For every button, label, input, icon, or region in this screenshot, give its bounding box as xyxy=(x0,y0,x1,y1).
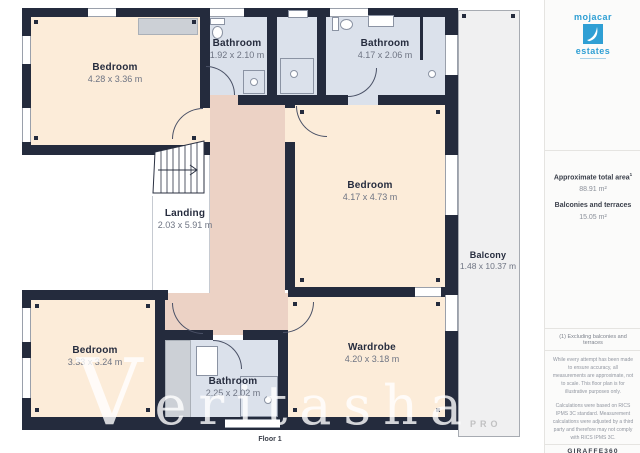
window-top-3 xyxy=(330,8,368,17)
wall-bedroom3-top xyxy=(22,290,168,300)
window-top-1 xyxy=(88,8,116,17)
shower-drain-2 xyxy=(290,70,298,78)
closet-bedroom-top-left xyxy=(138,18,198,35)
door-gap-bedroom2 xyxy=(285,108,295,142)
window-left-3 xyxy=(22,308,31,342)
watermark-sub: PRO xyxy=(470,419,502,429)
sink-bath2 xyxy=(368,15,394,27)
total-area-value: 88.91 m² xyxy=(549,186,637,193)
provider-brand: GIRAFFE360 xyxy=(551,448,635,453)
wall-wardrobe-top-a xyxy=(288,287,415,297)
balcony-area-value: 15.05 m² xyxy=(549,214,637,221)
stairs xyxy=(150,136,208,196)
window-right-1 xyxy=(445,35,458,75)
shower-drain-bath1 xyxy=(250,78,258,86)
wall-bath3-top-a xyxy=(155,330,213,340)
total-area-label: Approximate total area1 xyxy=(549,170,637,182)
room-label-bathroom-top-right: Bathroom 4.17 x 2.06 m xyxy=(325,38,445,60)
window-left-2 xyxy=(22,108,31,142)
floor-label: Floor 1 xyxy=(230,436,310,443)
sidebar-divider-1 xyxy=(545,150,640,151)
floorplan-canvas: Bedroom 4.28 x 3.36 m Bathroom 1.92 x 2.… xyxy=(0,0,544,453)
room-label-bathroom-top-center: Bathroom 1.92 x 2.10 m xyxy=(177,38,297,60)
room-label-landing: Landing 2.03 x 5.91 m xyxy=(115,208,255,230)
toilet-bowl-bath2 xyxy=(340,19,353,30)
agency-logo-name-top: mojacar xyxy=(545,12,640,22)
room-balcony xyxy=(458,10,520,437)
sidebar-divider-3 xyxy=(545,350,640,351)
room-label-bedroom-bottom-left: Bedroom 3.33 x 3.24 m xyxy=(25,345,165,367)
room-label-bedroom-top-left: Bedroom 4.28 x 3.36 m xyxy=(45,62,185,84)
agency-logo: mojacar estates xyxy=(545,12,640,59)
floorplan-page: Bedroom 4.28 x 3.36 m Bathroom 1.92 x 2.… xyxy=(0,0,640,453)
window-bottom-1 xyxy=(225,419,280,428)
shower-drain-bath2 xyxy=(428,70,436,78)
agency-logo-name-bottom: estates xyxy=(545,46,640,56)
room-label-bathroom-bottom: Bathroom 2.25 x 2.02 m xyxy=(163,376,303,398)
room-label-wardrobe: Wardrobe 4.20 x 3.18 m xyxy=(302,342,442,364)
sidebar-divider-2 xyxy=(545,328,640,329)
door-gap-bath1 xyxy=(210,95,238,105)
window-wardrobe-top xyxy=(415,287,441,297)
sink-bath3 xyxy=(196,346,218,376)
balcony-door xyxy=(445,155,458,215)
wall-under-bathrooms xyxy=(200,95,458,105)
disclaimer-paragraph-1: While every attempt has been made to ens… xyxy=(551,356,635,396)
area-footnote: (1) Excluding balconies and terraces xyxy=(549,334,637,346)
area-summary: Approximate total area1 88.91 m² Balconi… xyxy=(549,162,637,221)
room-label-bedroom-mid-right: Bedroom 4.17 x 4.73 m xyxy=(300,180,440,202)
window-top-2 xyxy=(210,8,244,17)
window-right-2 xyxy=(445,295,458,331)
room-label-balcony: Balcony 1.48 x 10.37 m xyxy=(418,250,558,271)
cistern-shower-room xyxy=(288,10,308,18)
agency-logo-rule xyxy=(580,58,606,59)
disclaimer-paragraph-2: Calculations were based on RICS IPMS 3C … xyxy=(551,402,635,442)
balcony-area-label: Balconies and terraces xyxy=(549,201,637,210)
toilet-tank-bath2 xyxy=(332,17,339,31)
window-left-1 xyxy=(22,36,31,64)
toilet-tank-bath1 xyxy=(210,18,225,25)
disclaimer: While every attempt has been made to ens… xyxy=(551,356,635,453)
sidebar: mojacar estates Approximate total area1 … xyxy=(544,0,640,453)
agency-logo-icon xyxy=(583,24,603,44)
